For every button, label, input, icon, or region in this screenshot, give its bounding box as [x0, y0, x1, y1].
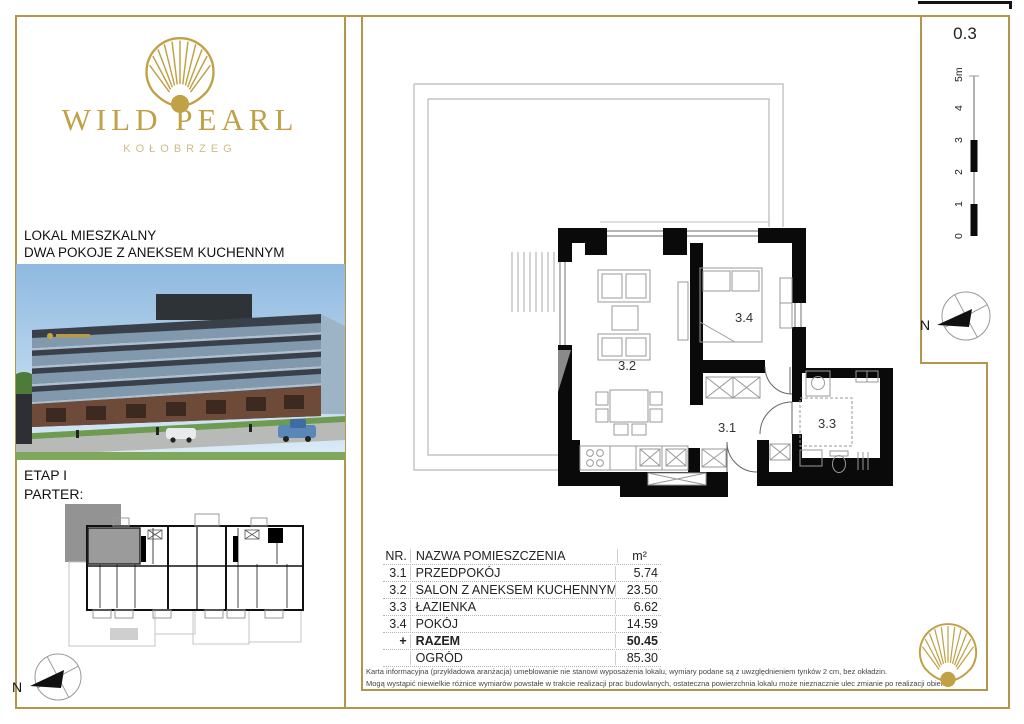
room-label-living: 3.2 — [618, 358, 636, 373]
compass-north-label: N — [12, 679, 22, 695]
row-area: 50.45 — [616, 634, 661, 648]
row-nr: 3.2 — [383, 583, 410, 597]
terrace-hatch — [512, 252, 554, 312]
row-name: POKÓJ — [410, 617, 616, 631]
header-area: m² — [618, 549, 661, 563]
room-label-bathroom: 3.3 — [818, 416, 836, 431]
compass-top-right: N — [916, 282, 1008, 352]
row-name: ŁAZIENKA — [410, 600, 616, 614]
stage-label: ETAP I — [24, 467, 67, 483]
table-row: 3.1 PRZEDPOKÓJ 5.74 — [383, 565, 661, 582]
room-label-bedroom: 3.4 — [735, 310, 753, 325]
scale-tick-3: 3 — [953, 137, 965, 143]
header-nr: NR. — [383, 549, 410, 563]
footer-shell-logo — [916, 620, 980, 690]
header-name: NAZWA POMIESZCZENIA — [410, 549, 618, 563]
unit-number: 0.3 — [922, 24, 1008, 44]
row-area: 23.50 — [616, 583, 661, 597]
row-area: 85.30 — [616, 651, 661, 665]
scale-tick-2: 2 — [953, 169, 965, 175]
table-header-row: NR. NAZWA POMIESZCZENIA m² — [383, 548, 661, 565]
disclaimer-line1: Karta informacyjna (przykładowa aranżacj… — [366, 666, 953, 678]
listing-type-line2: DWA POKOJE Z ANEKSEM KUCHENNYM — [24, 244, 285, 261]
brand-city: KOŁOBRZEG — [25, 143, 335, 155]
row-name: RAZEM — [410, 634, 616, 648]
disclaimer-line2: Mogą wystąpić niewielkie różnice wymiaró… — [366, 678, 953, 690]
apartment-floor-plan — [400, 60, 920, 510]
table-row-total: + RAZEM 50.45 — [383, 633, 661, 650]
floorplan-info-sheet: { "brand": { "name": "WILD PEARL", "city… — [0, 0, 1024, 724]
compass-bottom-left: N — [8, 648, 98, 708]
row-name: OGRÓD — [410, 651, 616, 665]
scale-tick-0: 0 — [953, 233, 965, 239]
disclaimer: Karta informacyjna (przykładowa aranżacj… — [366, 666, 953, 689]
row-nr: 3.4 — [383, 617, 410, 631]
table-row: 3.2 SALON Z ANEKSEM KUCHENNYM 23.50 — [383, 582, 661, 599]
row-area: 6.62 — [616, 600, 661, 614]
scale-tick-1: 1 — [953, 201, 965, 207]
row-name: PRZEDPOKÓJ — [410, 566, 616, 580]
row-area: 14.59 — [616, 617, 661, 631]
scale-bar: 0 1 2 3 4 5m — [930, 66, 1002, 246]
scale-tick-5m: 5m — [953, 67, 965, 82]
building-photo — [16, 264, 345, 460]
row-nr: + — [383, 634, 410, 648]
row-nr: 3.3 — [383, 600, 410, 614]
table-row-garden: OGRÓD 85.30 — [383, 650, 661, 667]
building-level-plan — [55, 498, 305, 656]
table-row: 3.3 ŁAZIENKA 6.62 — [383, 599, 661, 616]
brand-name: WILD PEARL — [25, 102, 335, 138]
listing-type-line1: LOKAL MIESZKALNY — [24, 227, 285, 244]
compass-north-label: N — [920, 317, 930, 333]
listing-type: LOKAL MIESZKALNY DWA POKOJE Z ANEKSEM KU… — [24, 227, 285, 261]
row-name: SALON Z ANEKSEM KUCHENNYM — [410, 583, 616, 597]
row-nr: 3.1 — [383, 566, 410, 580]
row-area: 5.74 — [616, 566, 661, 580]
scale-tick-4: 4 — [953, 105, 965, 111]
room-label-hallway: 3.1 — [718, 420, 736, 435]
room-area-table: NR. NAZWA POMIESZCZENIA m² 3.1 PRZEDPOKÓ… — [383, 548, 661, 667]
table-row: 3.4 POKÓJ 14.59 — [383, 616, 661, 633]
